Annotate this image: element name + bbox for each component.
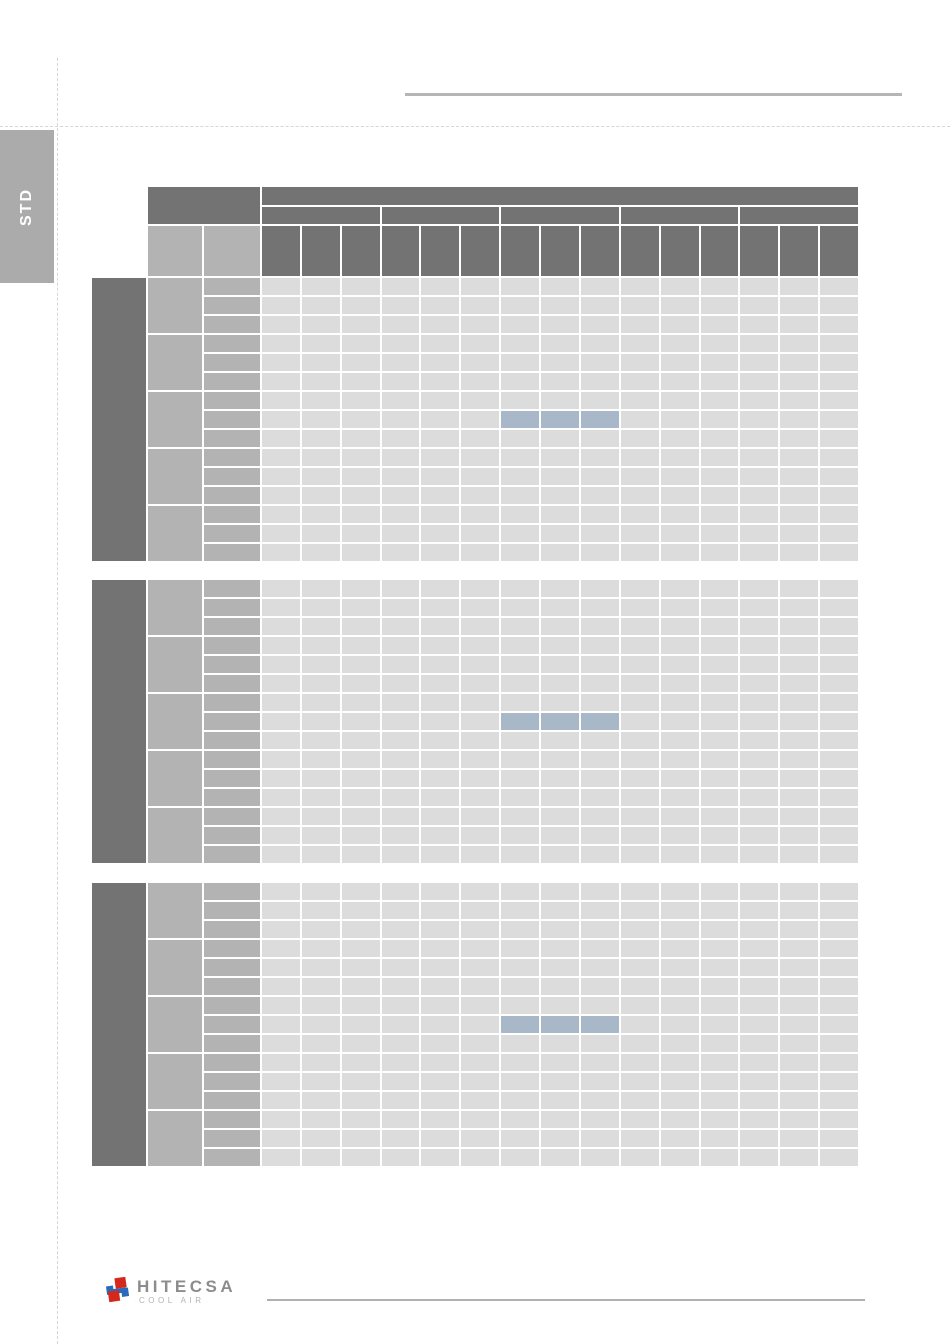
data-cell	[262, 656, 300, 673]
data-cell	[541, 675, 579, 692]
data-cell	[820, 921, 858, 938]
data-cell	[501, 770, 539, 787]
data-cell	[581, 902, 619, 919]
data-cell	[461, 392, 499, 409]
data-cell	[820, 732, 858, 749]
data-cell	[820, 487, 858, 504]
data-cell	[621, 599, 659, 616]
data-cell	[581, 335, 619, 352]
data-cell	[701, 770, 739, 787]
data-cell	[421, 883, 459, 900]
row-label-cell	[204, 1130, 260, 1147]
data-cell	[382, 335, 420, 352]
highlighted-data-cell	[501, 411, 539, 428]
data-cell	[302, 392, 340, 409]
data-cell	[740, 1054, 778, 1071]
data-cell	[421, 789, 459, 806]
data-cell	[820, 430, 858, 447]
data-cell	[382, 789, 420, 806]
data-cell	[780, 487, 818, 504]
header-column-cell	[820, 226, 858, 276]
data-cell	[661, 732, 699, 749]
data-cell	[701, 789, 739, 806]
data-cell	[262, 751, 300, 768]
data-cell	[461, 468, 499, 485]
data-cell	[621, 883, 659, 900]
data-cell	[581, 1149, 619, 1166]
data-cell	[661, 468, 699, 485]
data-cell	[740, 1130, 778, 1147]
header-subgroup-cell	[262, 207, 380, 224]
data-cell	[262, 335, 300, 352]
data-cell	[780, 1092, 818, 1109]
data-cell	[461, 883, 499, 900]
data-cell	[740, 675, 778, 692]
data-cell	[262, 675, 300, 692]
data-cell	[740, 316, 778, 333]
data-cell	[501, 373, 539, 390]
data-cell	[701, 940, 739, 957]
data-cell	[342, 751, 380, 768]
row-label-cell	[204, 978, 260, 995]
data-cell	[501, 1111, 539, 1128]
data-cell	[740, 751, 778, 768]
data-cell	[780, 789, 818, 806]
data-cell	[461, 1054, 499, 1071]
data-cell	[501, 449, 539, 466]
data-cell	[342, 1016, 380, 1033]
data-cell	[302, 921, 340, 938]
data-cell	[421, 846, 459, 863]
data-cell	[701, 278, 739, 295]
data-cell	[621, 846, 659, 863]
data-cell	[780, 902, 818, 919]
data-cell	[421, 637, 459, 654]
data-cell	[701, 883, 739, 900]
data-cell	[820, 580, 858, 597]
data-cell	[701, 430, 739, 447]
data-cell	[302, 789, 340, 806]
data-cell	[262, 1111, 300, 1128]
data-cell	[621, 580, 659, 597]
data-cell	[740, 335, 778, 352]
data-cell	[780, 770, 818, 787]
data-cell	[382, 902, 420, 919]
data-cell	[820, 278, 858, 295]
row-group-cell	[148, 506, 202, 561]
data-cell	[541, 978, 579, 995]
row-label-cell	[204, 637, 260, 654]
data-cell	[342, 808, 380, 825]
data-cell	[820, 637, 858, 654]
data-cell	[342, 846, 380, 863]
data-cell	[461, 430, 499, 447]
header-column-cell	[581, 226, 619, 276]
data-cell	[302, 694, 340, 711]
highlighted-data-cell	[541, 1016, 579, 1033]
data-cell	[541, 599, 579, 616]
data-cell	[461, 449, 499, 466]
header-column-cell	[501, 226, 539, 276]
data-cell	[661, 278, 699, 295]
data-cell	[501, 637, 539, 654]
data-cell	[780, 978, 818, 995]
data-cell	[740, 618, 778, 635]
data-cell	[501, 808, 539, 825]
data-cell	[701, 827, 739, 844]
data-cell	[302, 656, 340, 673]
row-label-cell	[204, 354, 260, 371]
data-cell	[302, 599, 340, 616]
data-cell	[661, 1111, 699, 1128]
data-cell	[382, 297, 420, 314]
data-cell	[342, 580, 380, 597]
data-cell	[820, 883, 858, 900]
data-cell	[581, 1035, 619, 1052]
data-cell	[302, 940, 340, 957]
data-cell	[780, 997, 818, 1014]
data-cell	[581, 940, 619, 957]
data-cell	[342, 789, 380, 806]
data-cell	[820, 751, 858, 768]
row-group-cell	[148, 883, 202, 938]
row-group-cell	[148, 1111, 202, 1166]
data-cell	[262, 789, 300, 806]
data-cell	[541, 618, 579, 635]
data-cell	[621, 1016, 659, 1033]
data-cell	[820, 618, 858, 635]
data-cell	[661, 997, 699, 1014]
capacity-table-1	[92, 187, 858, 561]
data-cell	[780, 713, 818, 730]
data-cell	[382, 487, 420, 504]
data-cell	[621, 694, 659, 711]
data-cell	[262, 883, 300, 900]
data-cell	[382, 732, 420, 749]
data-cell	[461, 373, 499, 390]
data-cell	[382, 940, 420, 957]
data-cell	[501, 487, 539, 504]
data-cell	[342, 959, 380, 976]
row-label-cell	[204, 1111, 260, 1128]
data-cell	[740, 354, 778, 371]
data-cell	[342, 449, 380, 466]
data-cell	[621, 1035, 659, 1052]
data-cell	[780, 354, 818, 371]
data-cell	[421, 1111, 459, 1128]
data-cell	[581, 468, 619, 485]
data-cell	[780, 940, 818, 957]
row-label-cell	[204, 525, 260, 542]
data-cell	[501, 846, 539, 863]
data-cell	[342, 297, 380, 314]
data-cell	[621, 808, 659, 825]
data-cell	[342, 1054, 380, 1071]
header-column-cell	[382, 226, 420, 276]
data-cell	[581, 770, 619, 787]
data-cell	[740, 808, 778, 825]
highlighted-data-cell	[581, 411, 619, 428]
data-cell	[740, 940, 778, 957]
data-cell	[740, 694, 778, 711]
data-cell	[382, 656, 420, 673]
header-subgroup-cell	[501, 207, 619, 224]
data-cell	[661, 618, 699, 635]
data-cell	[421, 449, 459, 466]
data-cell	[701, 297, 739, 314]
data-cell	[382, 316, 420, 333]
data-cell	[780, 694, 818, 711]
data-cell	[581, 959, 619, 976]
data-cell	[421, 940, 459, 957]
data-cell	[621, 978, 659, 995]
data-cell	[581, 1073, 619, 1090]
data-cell	[461, 637, 499, 654]
data-cell	[661, 751, 699, 768]
data-cell	[262, 846, 300, 863]
data-cell	[541, 468, 579, 485]
data-cell	[262, 921, 300, 938]
data-cell	[421, 770, 459, 787]
data-cell	[740, 997, 778, 1014]
data-cell	[461, 789, 499, 806]
header-column-cell	[701, 226, 739, 276]
data-cell	[541, 335, 579, 352]
data-cell	[541, 902, 579, 919]
data-cell	[661, 580, 699, 597]
data-cell	[302, 411, 340, 428]
data-cell	[581, 978, 619, 995]
data-cell	[501, 1149, 539, 1166]
data-cell	[740, 902, 778, 919]
data-cell	[382, 580, 420, 597]
data-cell	[302, 959, 340, 976]
data-cell	[262, 316, 300, 333]
row-label-cell	[204, 694, 260, 711]
data-cell	[382, 354, 420, 371]
data-cell	[740, 713, 778, 730]
data-cell	[461, 959, 499, 976]
data-cell	[382, 544, 420, 561]
data-cell	[262, 1092, 300, 1109]
data-cell	[661, 297, 699, 314]
data-cell	[740, 883, 778, 900]
data-cell	[661, 637, 699, 654]
data-cell	[461, 846, 499, 863]
data-cell	[302, 506, 340, 523]
data-cell	[342, 599, 380, 616]
data-cell	[661, 506, 699, 523]
data-cell	[302, 846, 340, 863]
row-label-cell	[204, 599, 260, 616]
data-cell	[342, 1149, 380, 1166]
data-cell	[501, 1092, 539, 1109]
data-cell	[342, 902, 380, 919]
row-label-cell	[204, 335, 260, 352]
data-cell	[302, 373, 340, 390]
data-cell	[581, 1111, 619, 1128]
data-cell	[461, 580, 499, 597]
data-cell	[701, 637, 739, 654]
data-cell	[541, 789, 579, 806]
data-cell	[740, 978, 778, 995]
data-cell	[701, 599, 739, 616]
data-cell	[621, 1149, 659, 1166]
data-cell	[501, 468, 539, 485]
data-cell	[661, 940, 699, 957]
data-cell	[661, 675, 699, 692]
vertical-guide-line	[57, 58, 58, 1344]
data-cell	[421, 959, 459, 976]
data-cell	[382, 959, 420, 976]
data-cell	[501, 997, 539, 1014]
data-cell	[661, 959, 699, 976]
data-cell	[661, 1130, 699, 1147]
data-cell	[701, 1130, 739, 1147]
data-cell	[740, 599, 778, 616]
data-cell	[382, 713, 420, 730]
data-cell	[661, 373, 699, 390]
data-cell	[421, 713, 459, 730]
data-cell	[342, 373, 380, 390]
data-cell	[820, 997, 858, 1014]
data-cell	[382, 525, 420, 542]
data-cell	[581, 694, 619, 711]
data-cell	[461, 921, 499, 938]
data-cell	[382, 1054, 420, 1071]
data-cell	[461, 487, 499, 504]
data-cell	[820, 468, 858, 485]
header-subgroup-cell	[382, 207, 500, 224]
data-cell	[661, 392, 699, 409]
data-cell	[262, 1054, 300, 1071]
data-cell	[740, 1149, 778, 1166]
data-cell	[621, 411, 659, 428]
data-cell	[701, 902, 739, 919]
data-cell	[421, 1130, 459, 1147]
data-cell	[461, 599, 499, 616]
data-cell	[661, 902, 699, 919]
data-cell	[421, 1092, 459, 1109]
data-cell	[382, 1092, 420, 1109]
data-cell	[262, 902, 300, 919]
data-cell	[701, 732, 739, 749]
data-cell	[302, 1149, 340, 1166]
data-cell	[541, 297, 579, 314]
data-cell	[621, 637, 659, 654]
data-cell	[421, 978, 459, 995]
data-cell	[541, 770, 579, 787]
header-subgroup-cell	[621, 207, 739, 224]
data-cell	[661, 978, 699, 995]
data-cell	[262, 392, 300, 409]
data-cell	[342, 525, 380, 542]
data-cell	[421, 544, 459, 561]
data-cell	[382, 468, 420, 485]
data-cell	[382, 278, 420, 295]
row-label-cell	[204, 751, 260, 768]
data-cell	[302, 1130, 340, 1147]
data-cell	[581, 883, 619, 900]
data-cell	[701, 373, 739, 390]
data-cell	[541, 1073, 579, 1090]
data-cell	[382, 675, 420, 692]
data-cell	[342, 921, 380, 938]
data-cell	[501, 1035, 539, 1052]
data-cell	[262, 599, 300, 616]
data-cell	[621, 468, 659, 485]
data-cell	[302, 1016, 340, 1033]
data-cell	[342, 656, 380, 673]
data-cell	[461, 656, 499, 673]
data-cell	[740, 544, 778, 561]
data-cell	[382, 1035, 420, 1052]
data-cell	[661, 1035, 699, 1052]
row-label-cell	[204, 487, 260, 504]
data-cell	[820, 694, 858, 711]
data-cell	[382, 637, 420, 654]
data-cell	[820, 827, 858, 844]
data-cell	[262, 732, 300, 749]
data-cell	[262, 487, 300, 504]
data-cell	[342, 392, 380, 409]
data-cell	[421, 411, 459, 428]
data-cell	[820, 713, 858, 730]
data-cell	[780, 373, 818, 390]
data-cell	[382, 808, 420, 825]
data-cell	[780, 1035, 818, 1052]
data-cell	[421, 732, 459, 749]
row-label-cell	[204, 940, 260, 957]
capacity-table-2	[92, 580, 858, 863]
data-cell	[820, 373, 858, 390]
data-cell	[621, 902, 659, 919]
data-cell	[701, 1149, 739, 1166]
data-cell	[581, 846, 619, 863]
data-cell	[262, 544, 300, 561]
data-cell	[421, 487, 459, 504]
data-cell	[461, 316, 499, 333]
data-cell	[382, 430, 420, 447]
data-cell	[581, 921, 619, 938]
row-label-cell	[204, 430, 260, 447]
data-cell	[661, 770, 699, 787]
data-cell	[701, 506, 739, 523]
data-cell	[541, 544, 579, 561]
data-cell	[701, 1054, 739, 1071]
data-cell	[541, 656, 579, 673]
data-cell	[740, 846, 778, 863]
data-cell	[661, 1016, 699, 1033]
row-label-cell	[204, 770, 260, 787]
data-cell	[302, 978, 340, 995]
data-cell	[461, 1092, 499, 1109]
data-cell	[461, 1073, 499, 1090]
data-cell	[342, 940, 380, 957]
header-column-cell	[421, 226, 459, 276]
data-cell	[501, 959, 539, 976]
data-cell	[342, 618, 380, 635]
data-cell	[740, 525, 778, 542]
data-cell	[342, 637, 380, 654]
data-cell	[740, 770, 778, 787]
row-label-cell	[204, 1016, 260, 1033]
data-cell	[501, 940, 539, 957]
data-cell	[541, 827, 579, 844]
data-cell	[701, 618, 739, 635]
data-cell	[701, 335, 739, 352]
data-cell	[302, 827, 340, 844]
